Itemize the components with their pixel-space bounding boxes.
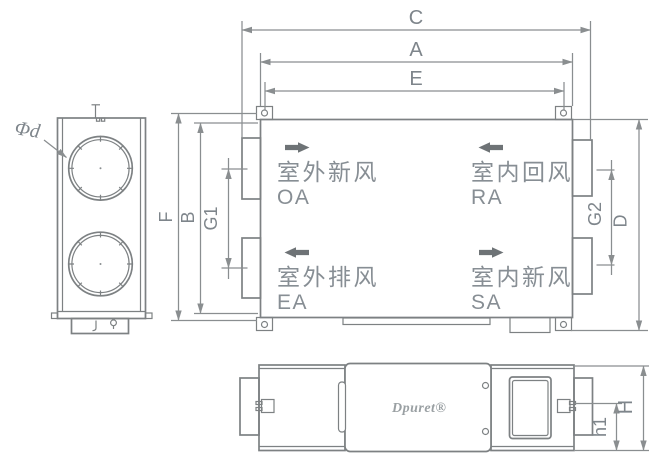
- dim-label-f: F: [156, 212, 176, 223]
- side-view-body: [58, 118, 146, 319]
- port-oa: 室外新风 OA: [277, 142, 379, 209]
- port-oa-name: 室外新风: [277, 159, 379, 185]
- port-ra: 室内回风 RA: [471, 142, 573, 209]
- flow-arrow-right-icon: [479, 247, 504, 258]
- port-sa-name: 室内新风: [471, 264, 573, 290]
- duct-stub-right-top: [573, 140, 593, 196]
- dim-label-d: D: [611, 215, 631, 228]
- port-sa-code: SA: [471, 291, 502, 314]
- dim-label-h: H: [615, 400, 637, 414]
- bottom-foot: [510, 318, 550, 333]
- circular-duct-port-bottom: [68, 232, 133, 297]
- diameter-label: Φd: [13, 117, 42, 143]
- side-view: Φd: [13, 105, 152, 334]
- dim-label-h1: h1: [590, 417, 610, 437]
- side-view-panel-lines: [52, 118, 153, 319]
- dim-label-e: E: [409, 68, 422, 90]
- diameter-leader-line: [44, 140, 67, 158]
- flow-arrow-left-icon: [479, 142, 504, 153]
- mounting-bracket-bottom-left: [257, 318, 273, 331]
- front-flange-left: [240, 378, 259, 435]
- port-ea-code: EA: [277, 291, 308, 314]
- dimension-d: D: [571, 120, 648, 331]
- port-ra-name: 室内回风: [471, 159, 573, 185]
- duct-stub-right-bottom: [573, 238, 593, 294]
- dim-label-b: B: [178, 211, 198, 223]
- dim-label-g1: G1: [201, 206, 221, 230]
- mounting-bracket-bottom-right: [556, 318, 572, 331]
- dim-label-g2: G2: [585, 202, 605, 226]
- top-view: 室外新风 OA 室内回风 RA 室外排风 EA 室内新风 SA: [242, 107, 592, 333]
- dimension-g1: G1: [201, 158, 248, 279]
- front-section-left: [259, 365, 345, 451]
- dimensional-drawing-page: Φd: [0, 0, 669, 475]
- port-ea: 室外排风 EA: [277, 247, 379, 314]
- brand-logo: Dpuret®: [391, 401, 446, 416]
- port-ea-name: 室外排风: [277, 264, 379, 290]
- dim-label-c: C: [409, 7, 423, 29]
- access-panel: [510, 377, 552, 439]
- port-ra-code: RA: [471, 186, 503, 209]
- front-view: Dpuret® h1 H: [240, 364, 649, 452]
- circular-duct-port-top: [68, 136, 133, 201]
- port-oa-code: OA: [277, 186, 310, 209]
- latch-slot: [339, 382, 346, 432]
- clip-right: [558, 400, 576, 413]
- flow-arrow-right-icon: [285, 142, 310, 153]
- erv-dimensional-drawing: Φd: [0, 0, 669, 475]
- bottom-rail: [343, 318, 490, 325]
- dimension-e: E: [265, 68, 564, 110]
- dim-label-a: A: [409, 39, 423, 61]
- flow-arrow-left-icon: [285, 247, 310, 258]
- side-view-foot-bracket: [72, 319, 129, 334]
- port-sa: 室内新风 SA: [471, 247, 573, 314]
